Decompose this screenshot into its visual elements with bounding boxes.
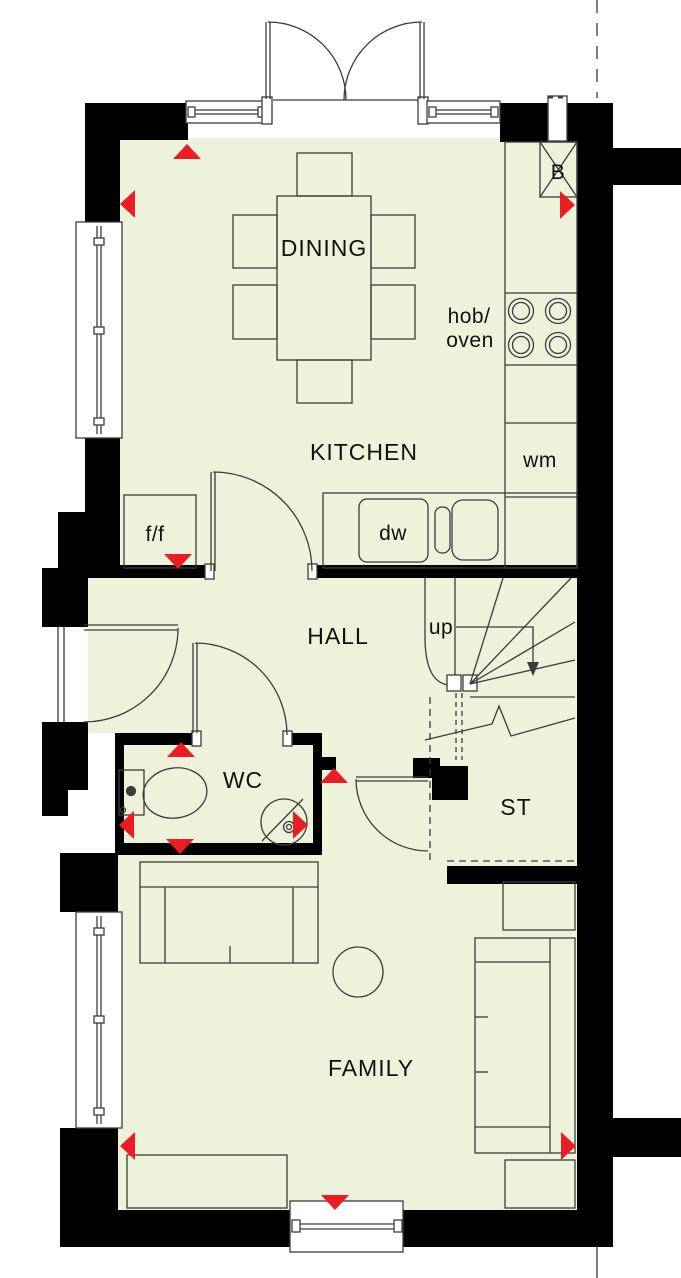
french-door-arc-left	[268, 22, 346, 100]
french-door-arc-right	[344, 22, 422, 100]
stairs-label-up: up	[429, 616, 453, 639]
flue-slot	[548, 96, 567, 141]
window-family-bottom	[290, 1201, 403, 1252]
appliance-label-boiler: B	[551, 161, 566, 184]
window-dining-left	[76, 222, 122, 438]
wall-left-mid	[85, 438, 120, 512]
french-doors	[262, 22, 428, 124]
wall-wc-right	[313, 733, 322, 855]
room-dining-kitchen-floor	[118, 138, 579, 580]
stair-newel-post-1	[447, 675, 461, 691]
appliance-label-hob-line2: oven	[446, 329, 494, 352]
wall-divider-left	[85, 565, 207, 578]
wall-bottom-left	[60, 1210, 293, 1247]
appliance-label-hob-line1: hob/	[448, 305, 491, 328]
window-top-right	[427, 101, 500, 123]
wall-divider-right	[314, 565, 577, 578]
room-family-floor	[118, 853, 577, 1212]
french-door-post-left	[262, 97, 272, 124]
wall-right	[577, 103, 613, 1247]
wall-wc-right-stub	[322, 757, 336, 770]
appliance-label-fridge-freezer: f/f	[145, 523, 164, 546]
wall-left-upper	[85, 103, 120, 222]
room-label-wc: WC	[223, 767, 263, 793]
window-top-left	[186, 101, 267, 123]
room-label-family: FAMILY	[328, 1055, 414, 1081]
room-label-kitchen: KITCHEN	[310, 439, 418, 465]
room-label-dining: DINING	[281, 235, 368, 261]
wall-porch-lower	[42, 722, 88, 790]
wall-stub-right-bottom	[613, 1118, 681, 1157]
wall-store-step-b	[432, 766, 468, 800]
floor-plan-drawing: DINING KITCHEN HALL WC ST FAMILY hob/ ov…	[0, 0, 681, 1278]
wall-family-left-upper	[60, 853, 118, 912]
appliance-label-washing-machine: wm	[522, 449, 557, 472]
wall-wc-bottom	[115, 843, 322, 855]
room-label-hall: HALL	[307, 623, 369, 649]
wall-porch-upper	[42, 568, 88, 627]
wall-bottom-right	[403, 1210, 613, 1247]
appliance-label-dishwasher: dw	[379, 522, 407, 545]
wall-store-bottom	[447, 866, 613, 884]
floor-plan-canvas: DINING KITCHEN HALL WC ST FAMILY hob/ ov…	[0, 0, 681, 1278]
room-label-store: ST	[500, 794, 531, 820]
toilet-flush-button	[127, 787, 136, 796]
wall-left-block	[58, 512, 120, 572]
wall-stub-right-top	[613, 148, 681, 185]
wall-wc-top-left	[115, 733, 196, 745]
wall-porch-tail	[42, 790, 68, 816]
window-family-left	[76, 912, 122, 1128]
